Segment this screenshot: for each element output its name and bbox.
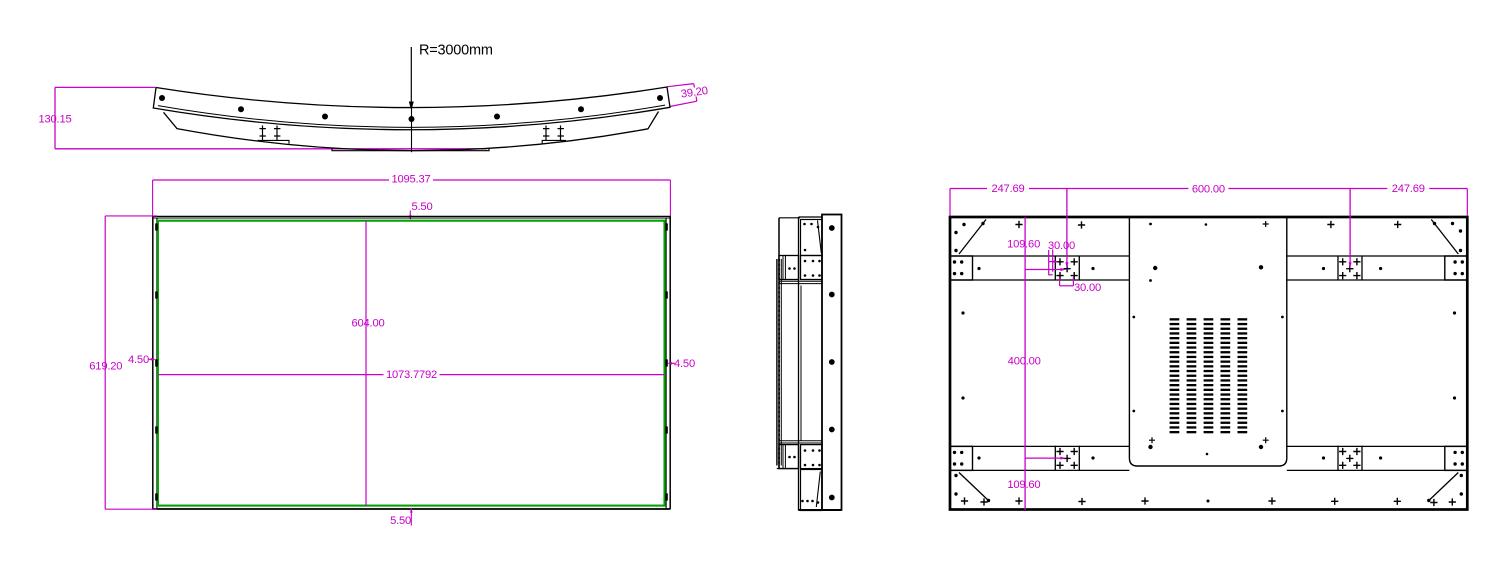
svg-text:247.69: 247.69 — [991, 183, 1024, 195]
svg-text:400.00: 400.00 — [1008, 355, 1041, 367]
svg-text:1095.37: 1095.37 — [391, 174, 430, 186]
svg-text:30.00: 30.00 — [1074, 282, 1101, 294]
svg-text:604.00: 604.00 — [351, 318, 384, 330]
svg-text:247.69: 247.69 — [1392, 183, 1425, 195]
svg-text:130.15: 130.15 — [38, 114, 71, 126]
svg-text:619.20: 619.20 — [89, 360, 122, 372]
svg-text:109.60: 109.60 — [1007, 479, 1040, 491]
svg-text:4.50: 4.50 — [674, 358, 695, 370]
svg-text:4.50: 4.50 — [128, 354, 149, 366]
svg-text:R=3000mm: R=3000mm — [419, 43, 493, 59]
svg-text:5.50: 5.50 — [412, 201, 433, 213]
svg-text:109.60: 109.60 — [1007, 238, 1040, 250]
svg-text:1073.7792: 1073.7792 — [386, 369, 437, 381]
svg-text:600.00: 600.00 — [1192, 184, 1225, 196]
svg-text:5.50: 5.50 — [390, 515, 411, 527]
svg-text:30.00: 30.00 — [1048, 240, 1075, 252]
